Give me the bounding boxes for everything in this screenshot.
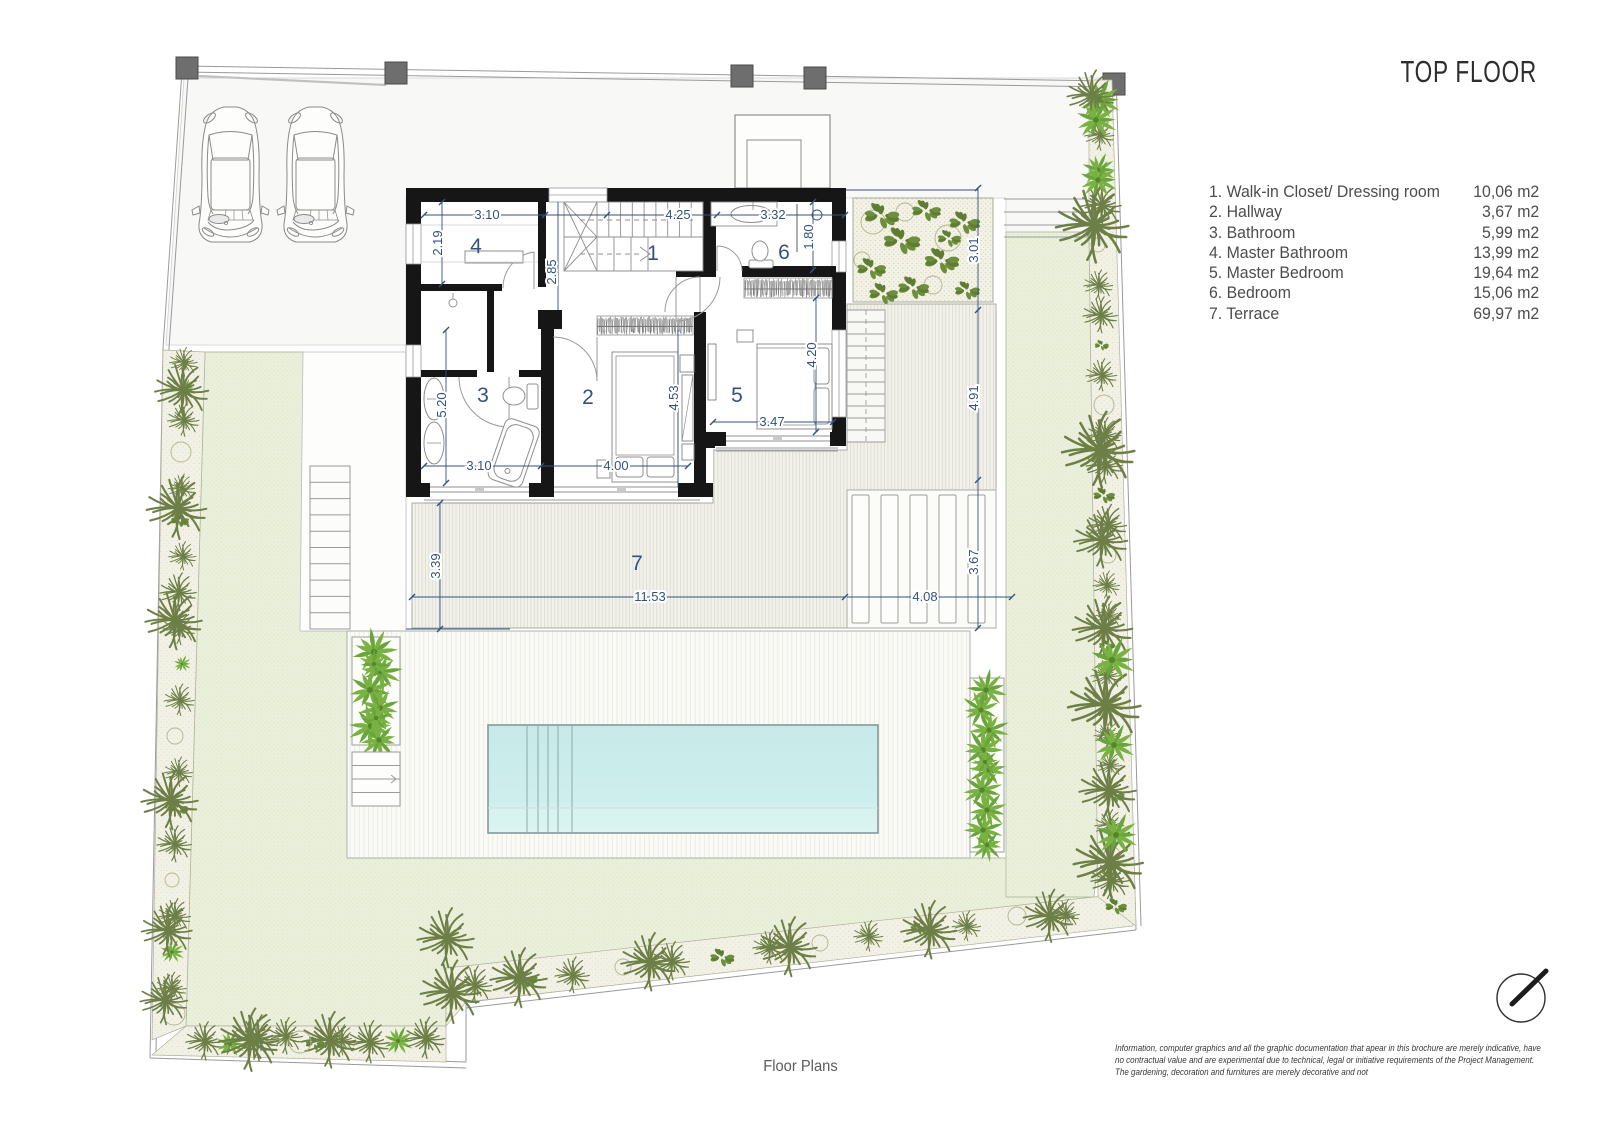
svg-text:5.20: 5.20 (434, 392, 449, 417)
svg-text:3.10: 3.10 (466, 458, 491, 473)
svg-text:2.19: 2.19 (430, 230, 445, 255)
svg-text:2: 2 (582, 386, 594, 409)
svg-text:4.91: 4.91 (966, 385, 981, 410)
svg-text:6: 6 (778, 241, 790, 264)
svg-text:3.01: 3.01 (966, 237, 981, 262)
svg-text:7: 7 (631, 552, 643, 575)
svg-text:1: 1 (647, 242, 659, 265)
svg-text:3.39: 3.39 (428, 553, 443, 578)
svg-text:2.85: 2.85 (544, 259, 559, 284)
svg-text:11.53: 11.53 (634, 589, 666, 604)
svg-text:4.00: 4.00 (603, 458, 628, 473)
svg-text:4.08: 4.08 (912, 589, 937, 604)
svg-text:3: 3 (477, 384, 489, 407)
svg-text:4.25: 4.25 (665, 207, 690, 222)
svg-text:3.32: 3.32 (760, 207, 785, 222)
svg-text:5: 5 (731, 384, 743, 407)
svg-text:3.47: 3.47 (759, 414, 784, 429)
svg-text:3.67: 3.67 (966, 549, 981, 574)
svg-text:4.53: 4.53 (666, 385, 681, 410)
svg-text:4: 4 (470, 235, 482, 258)
svg-text:1.80: 1.80 (801, 224, 816, 249)
svg-text:4.20: 4.20 (804, 342, 819, 367)
svg-text:3.10: 3.10 (474, 207, 499, 222)
